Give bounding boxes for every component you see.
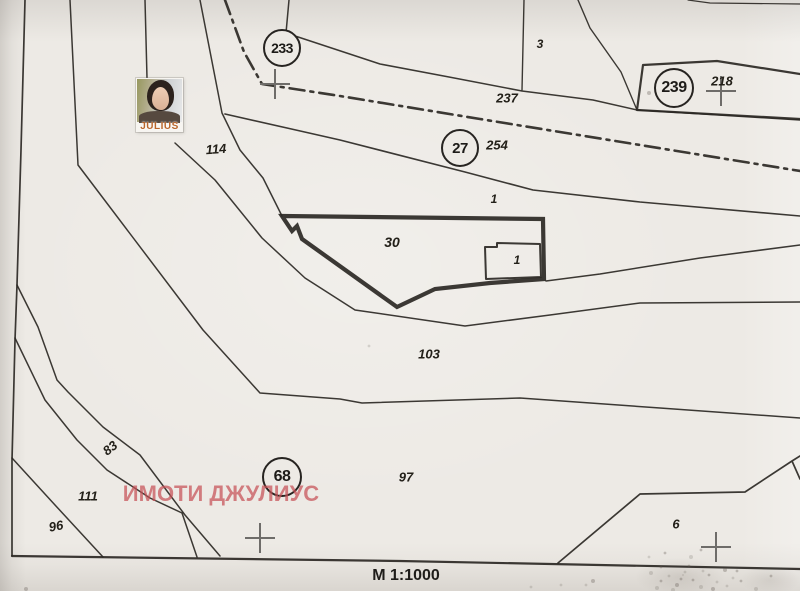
map-scale-label: М 1:1000 (372, 567, 440, 585)
parcel-239-outline (637, 61, 800, 119)
top-right-boundary (688, 0, 800, 4)
southwest-diagonal-2 (15, 338, 197, 557)
parcel-3-right-edge (578, 0, 637, 110)
southwest-diagonal-3 (12, 458, 103, 557)
boundary-line-west-3 (200, 0, 282, 216)
boundary-line-237 (286, 0, 800, 120)
agent-photo-caption: JULIUS (136, 121, 183, 132)
portrait-face (152, 87, 169, 110)
parcel-6-outline (558, 456, 800, 563)
boundary-right-of-plot (546, 245, 800, 281)
dash-dot-boundary (225, 0, 800, 171)
scan-noise-speckles (0, 0, 2, 2)
cadastral-map-scan: 2332392768 32372182541141301103978311196… (0, 0, 800, 591)
boundary-line-mid (225, 114, 800, 216)
agent-photo: JULIUS (136, 78, 183, 132)
building-outline (485, 243, 541, 279)
map-line-work (0, 0, 800, 591)
map-border-left (12, 0, 25, 556)
highlighted-plot-outline (282, 216, 544, 307)
parcel-3-left-edge (522, 0, 524, 90)
southwest-diagonal-1 (17, 285, 220, 556)
